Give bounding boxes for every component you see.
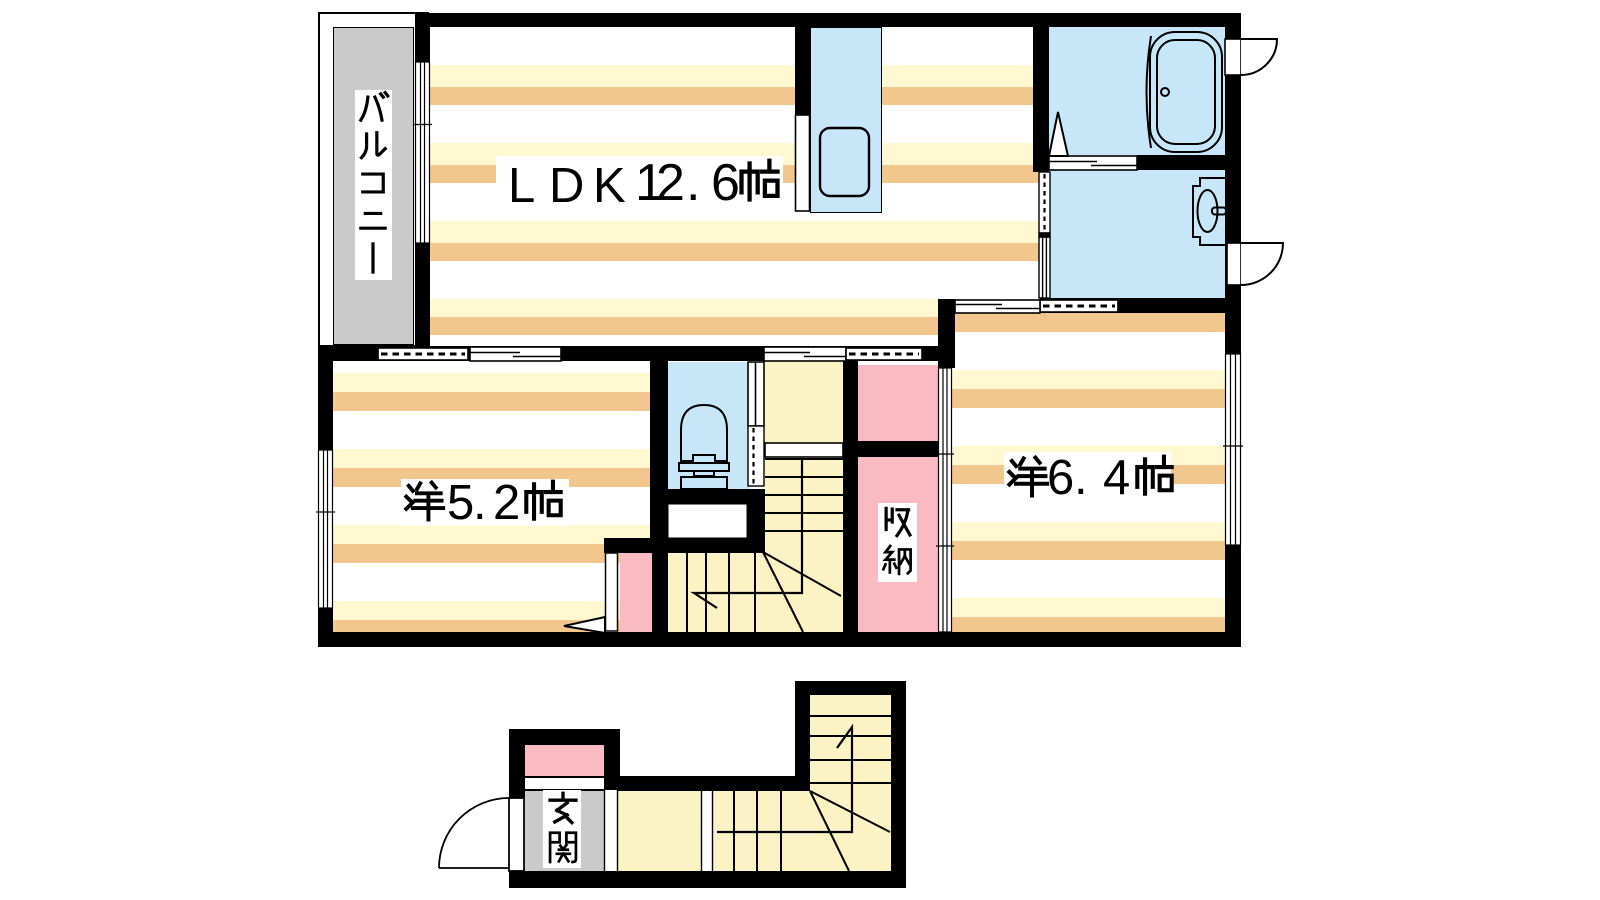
svg-text:12.6: 12.6 — [635, 154, 740, 212]
svg-text:5.2: 5.2 — [447, 476, 520, 530]
svg-text:LDK: LDK — [508, 159, 626, 213]
